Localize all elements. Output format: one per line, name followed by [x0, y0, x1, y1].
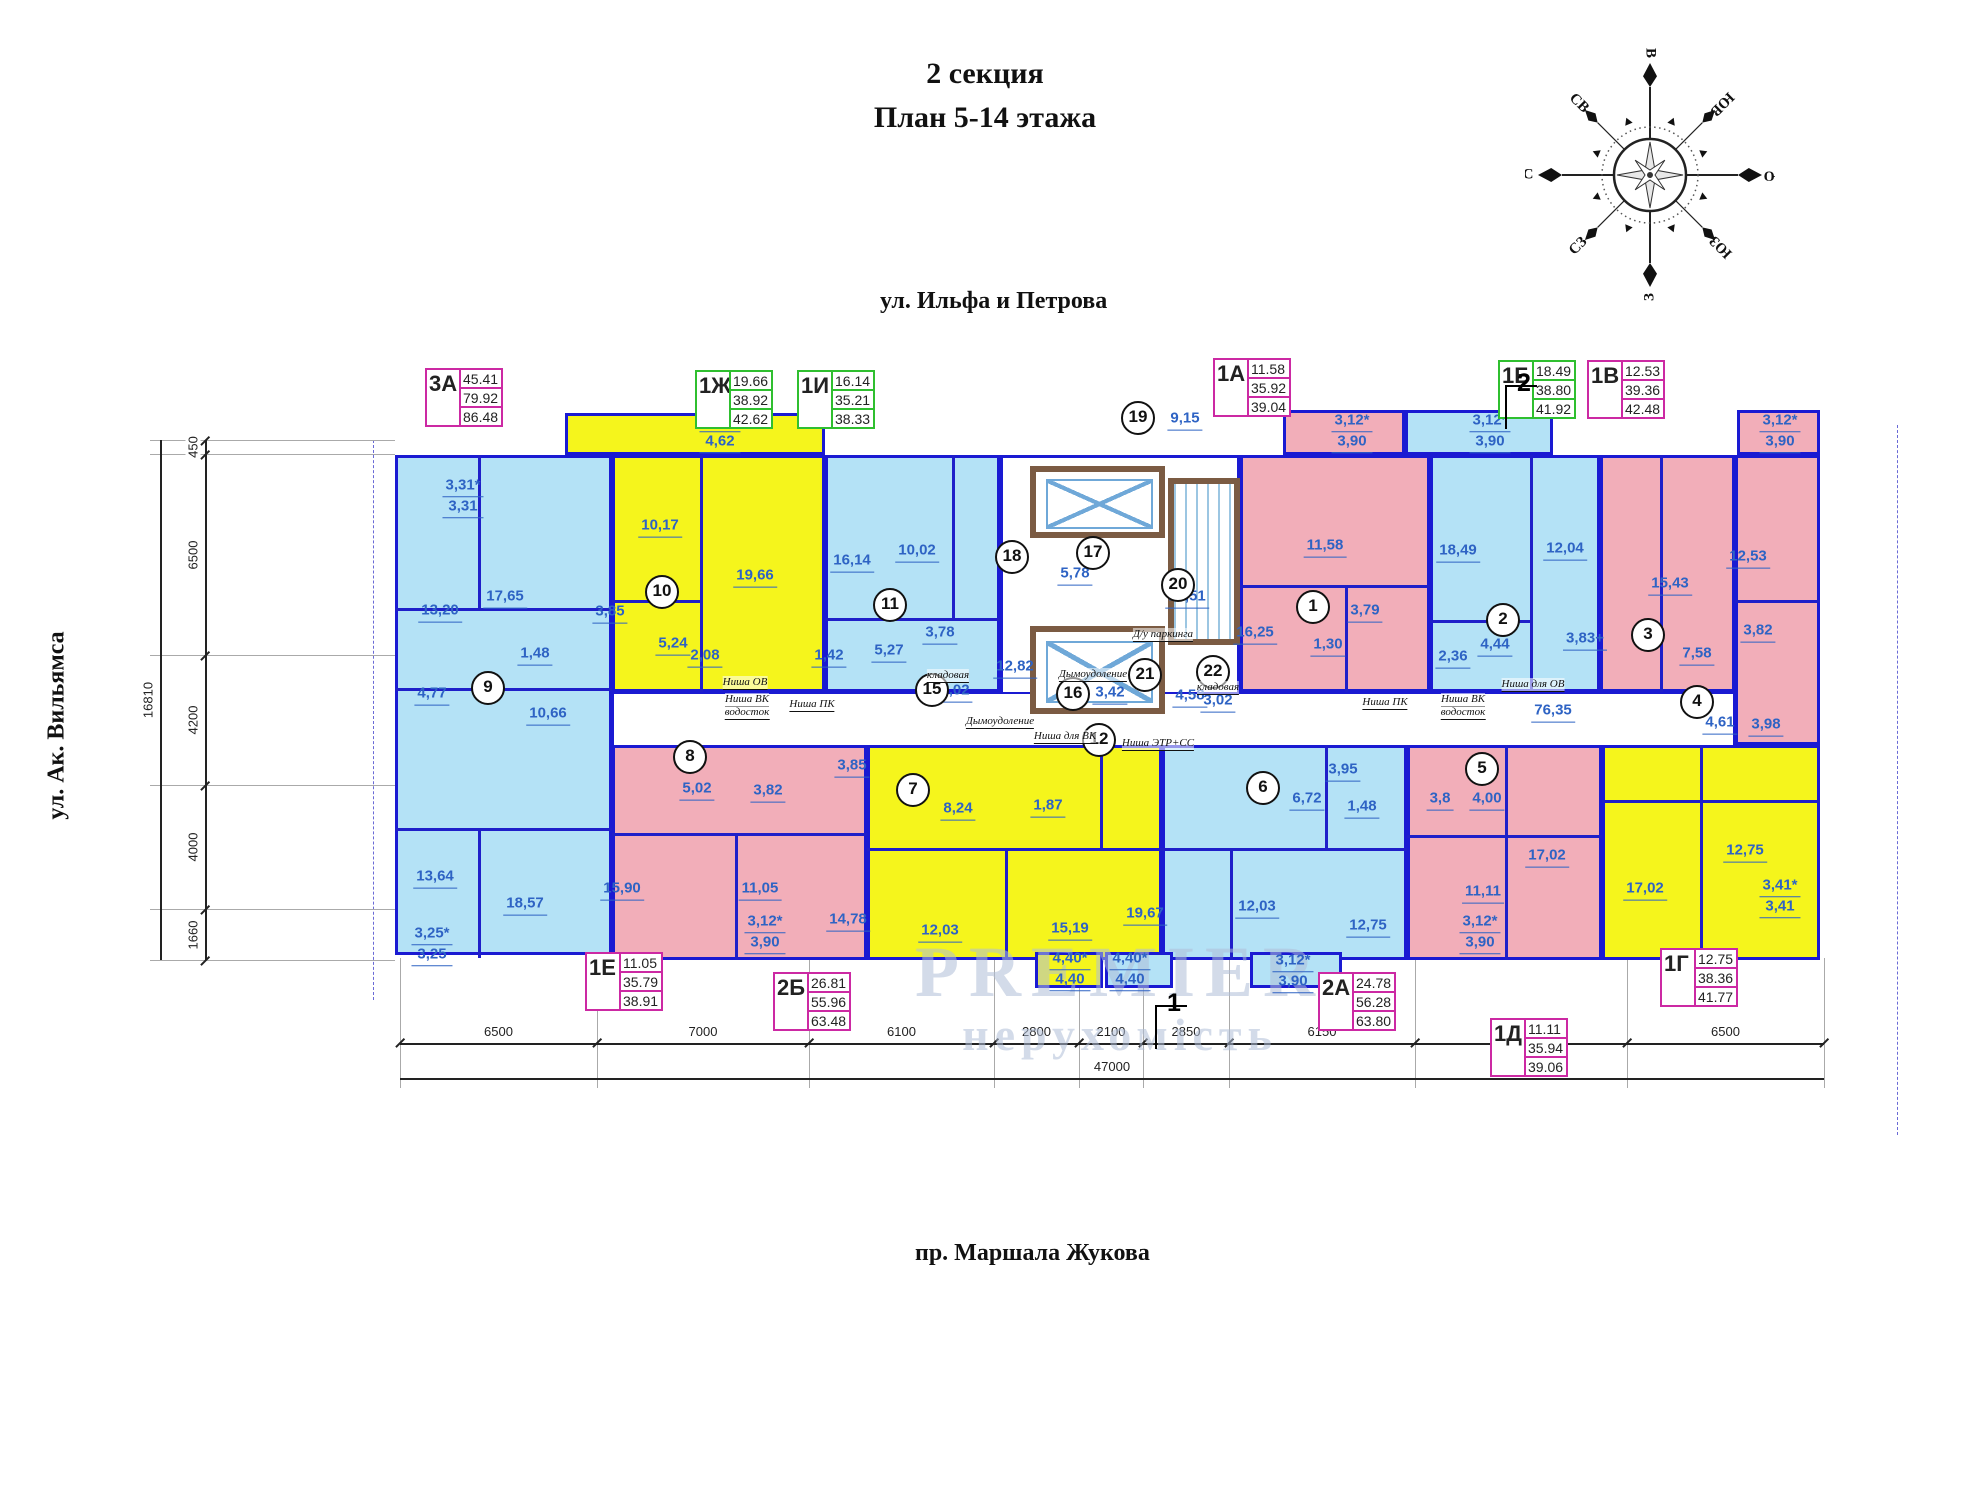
room-number-circle: 21 — [1128, 658, 1162, 692]
apartment-id: 2Б — [773, 972, 809, 1031]
room-number-circle: 3 — [1631, 618, 1665, 652]
room-area-label: 15,19 — [1048, 920, 1092, 941]
area-value: 19,66 — [733, 567, 777, 588]
room-area-label: 14,78 — [826, 911, 870, 932]
axis-line — [373, 440, 374, 1000]
dimension-label: 6500 — [1709, 1024, 1742, 1039]
service-note: Ниша ПК — [789, 698, 834, 712]
area-value: 12,53 — [1726, 548, 1770, 569]
apartment-area-value: 38.36 — [1694, 967, 1738, 988]
room-area-label: 10,02 — [895, 542, 939, 563]
room-area-label: 16,14 — [830, 552, 874, 573]
room-area-label: 8,24 — [940, 800, 975, 821]
dimension-label-total: 16810 — [141, 680, 156, 720]
svg-text:Ю: Ю — [1763, 168, 1775, 184]
room-block-blue — [825, 455, 1000, 692]
dimension-label: 6500 — [186, 538, 201, 571]
room-number-circle: 9 — [471, 671, 505, 705]
service-note: Ниша для ОВ — [1502, 678, 1565, 692]
partition-wall — [1700, 745, 1703, 960]
area-value: 4,00 — [1469, 790, 1504, 811]
area-value: 3,8 — [1427, 790, 1454, 811]
apartment-area-value: 16.14 — [831, 370, 875, 391]
room-area-label: 12,75 — [1346, 917, 1390, 938]
apartment-table-1Г: 1Г12.7538.3641.77 — [1660, 948, 1738, 1007]
apartment-area-value: 42.62 — [729, 408, 773, 429]
area-value: 15,90 — [600, 880, 644, 901]
room-area-label: 15,43 — [1648, 575, 1692, 596]
room-number-circle: 20 — [1161, 568, 1195, 602]
apartment-area-value: 55.96 — [807, 991, 851, 1012]
room-area-label: 12,03 — [1235, 898, 1279, 919]
apartment-table-2А: 2А24.7856.2863.80 — [1318, 972, 1396, 1031]
room-number-circle: 10 — [645, 575, 679, 609]
room-area-label: 19,66 — [733, 567, 777, 588]
partition-wall — [1162, 848, 1407, 851]
apartment-area-value: 24.78 — [1352, 972, 1396, 993]
extension-line — [1824, 958, 1825, 1088]
compass-rose: ВЮВЮЮЗЗСЗССВ — [1525, 40, 1775, 310]
room-area-label: 3,82 — [750, 782, 785, 803]
area-value: 4,61 — [1702, 714, 1737, 735]
area-value: 4,40* — [1109, 949, 1150, 970]
service-note: Ниша ОВ — [723, 676, 768, 690]
room-area-label: 3,12*3,90 — [1272, 951, 1313, 993]
service-note: Ниша ВК — [725, 693, 769, 707]
partition-wall — [867, 848, 1162, 851]
area-value: 3,25* — [411, 924, 452, 945]
svg-text:В: В — [1643, 48, 1659, 58]
service-note: Ниша ВК — [1441, 693, 1485, 707]
room-block-yellow — [1602, 745, 1820, 960]
apartment-table-1Е: 1Е11.0535.7938.91 — [585, 952, 663, 1011]
area-value: 13,20 — [418, 602, 462, 623]
area-value: 12,75 — [1723, 842, 1767, 863]
area-value: 12,03 — [918, 922, 962, 943]
partition-wall — [1660, 455, 1663, 692]
room-area-label: 5,27 — [871, 642, 906, 663]
area-value: 11,05 — [739, 880, 782, 901]
dimension-label: 7000 — [687, 1024, 720, 1039]
area-value: 7,58 — [1679, 645, 1714, 666]
room-area-label: 2,36 — [1435, 648, 1470, 669]
area-value: 4,44 — [1477, 636, 1512, 657]
area-value: 3,12* — [1272, 951, 1313, 972]
room-area-label: 17,65 — [483, 588, 527, 609]
room-area-label: 1,48 — [517, 645, 552, 666]
area-value: 5,27 — [871, 642, 906, 663]
room-area-label: 3,79 — [1347, 602, 1382, 623]
area-value: 11,11 — [1462, 883, 1504, 904]
section-marker: 1 — [1155, 1005, 1187, 1049]
apartment-area-value: 11.11 — [1524, 1018, 1568, 1039]
partition-wall — [478, 828, 481, 958]
area-value: 3,41 — [1759, 897, 1800, 918]
partition-wall — [1735, 600, 1820, 603]
area-value: 13,64 — [413, 868, 457, 889]
area-value: 3,12* — [1331, 411, 1372, 432]
area-value: 3,90 — [1459, 933, 1500, 954]
apartment-area-value: 35.79 — [619, 971, 663, 992]
area-value: 3,83+ — [1563, 630, 1607, 651]
area-value: 2,08 — [687, 647, 722, 668]
area-value: 19,67 — [1123, 905, 1167, 926]
area-value: 2,36 — [1435, 648, 1470, 669]
partition-wall — [1602, 800, 1820, 803]
room-block-pink — [1240, 455, 1430, 692]
room-area-label: 17,02 — [1623, 880, 1667, 901]
area-value: 3,90 — [1469, 432, 1510, 453]
room-area-label: 3,12*3,90 — [744, 912, 785, 954]
room-number-circle: 17 — [1076, 536, 1110, 570]
room-area-label: 1,42 — [811, 647, 846, 668]
area-value: 1,48 — [1344, 798, 1379, 819]
apartment-table-3А: 3А45.4179.9286.48 — [425, 368, 503, 427]
apartment-id: 1Д — [1490, 1018, 1526, 1077]
svg-text:С: С — [1525, 166, 1533, 182]
apartment-area-value: 19.66 — [729, 370, 773, 391]
apartment-table-1А: 1А11.5835.9239.04 — [1213, 358, 1291, 417]
room-area-label: 6,72 — [1289, 790, 1324, 811]
room-area-label: 10,17 — [638, 517, 682, 538]
area-value: 17,65 — [483, 588, 527, 609]
room-area-label: 3,25*3,25 — [411, 924, 452, 966]
room-number-circle: 1 — [1296, 590, 1330, 624]
service-note: Дымоудоление — [1059, 668, 1127, 682]
area-value: 3,79 — [1347, 602, 1382, 623]
room-area-label: 3,85 — [834, 757, 869, 778]
apartment-id: 1Г — [1660, 948, 1696, 1007]
section-marker: 2 — [1505, 385, 1537, 429]
room-area-label: 3,95 — [1325, 761, 1360, 782]
extension-line — [150, 655, 395, 656]
room-number-circle: 8 — [673, 740, 707, 774]
area-value: 3,12* — [744, 912, 785, 933]
apartment-area-value: 38.91 — [619, 990, 663, 1011]
elevator-cab-icon — [1046, 479, 1153, 529]
area-value: 10,17 — [638, 517, 682, 538]
area-value: 1,30 — [1310, 636, 1345, 657]
area-value: 1,42 — [811, 647, 846, 668]
room-block-pink — [1600, 455, 1735, 692]
area-value: 3,31 — [442, 497, 483, 518]
apartment-id: 1А — [1213, 358, 1249, 417]
partition-wall — [952, 455, 955, 620]
partition-wall — [612, 833, 867, 836]
apartment-table-1И: 1И16.1435.2138.33 — [797, 370, 875, 429]
area-value: 15,43 — [1648, 575, 1692, 596]
area-value: 14,78 — [826, 911, 870, 932]
room-number-circle: 18 — [995, 540, 1029, 574]
dimension-label: 6500 — [482, 1024, 515, 1039]
room-number-circle: 7 — [896, 773, 930, 807]
apartment-area-value: 18.49 — [1532, 360, 1576, 381]
room-number-circle: 5 — [1465, 752, 1499, 786]
apartment-area-value: 41.92 — [1532, 398, 1576, 419]
area-value: 3,31* — [442, 476, 483, 497]
room-area-label: 9,15 — [1167, 410, 1202, 431]
area-value: 3,25 — [411, 945, 452, 966]
room-area-label: 3,83+ — [1563, 630, 1607, 651]
apartment-area-value: 42.48 — [1621, 398, 1665, 419]
service-note: кладовая — [1197, 681, 1239, 695]
area-value: 76,35 — [1531, 702, 1575, 723]
apartment-area-value: 35.21 — [831, 389, 875, 410]
room-area-label: 3,12*3,90 — [1331, 411, 1372, 453]
area-value: 18,49 — [1436, 542, 1480, 563]
room-number-circle: 11 — [873, 588, 907, 622]
area-value: 4,77 — [414, 685, 449, 706]
room-area-label: 1,48 — [1344, 798, 1379, 819]
partition-wall — [735, 833, 738, 960]
room-area-label: 19,67 — [1123, 905, 1167, 926]
street-bottom: пр. Маршала Жукова — [915, 1240, 1150, 1267]
apartment-area-value: 35.94 — [1524, 1037, 1568, 1058]
extension-line — [1415, 958, 1416, 1088]
service-note: Дымоудоление — [966, 715, 1034, 729]
room-number-circle: 19 — [1121, 401, 1155, 435]
partition-wall — [1240, 585, 1430, 588]
area-value: 18,57 — [503, 895, 547, 916]
apartment-id: 1В — [1587, 360, 1623, 419]
extension-line — [400, 958, 401, 1088]
room-area-label: 18,49 — [1436, 542, 1480, 563]
room-area-label: 13,64 — [413, 868, 457, 889]
partition-wall — [1100, 745, 1103, 848]
area-value: 4,62 — [699, 432, 740, 453]
area-value: 3,90 — [1759, 432, 1800, 453]
apartment-table-2Б: 2Б26.8155.9663.48 — [773, 972, 851, 1031]
page-title: 2 секция План 5-14 этажа — [785, 52, 1185, 139]
area-value: 17,02 — [1525, 847, 1569, 868]
site-boundary-line — [1897, 425, 1898, 1135]
apartment-id: 3А — [425, 368, 461, 427]
room-area-label: 4,77 — [414, 685, 449, 706]
partition-wall — [1530, 455, 1533, 692]
svg-text:З: З — [1641, 293, 1657, 301]
extension-line — [1627, 958, 1628, 1088]
area-value: 3,95 — [1325, 761, 1360, 782]
apartment-area-value: 39.36 — [1621, 379, 1665, 400]
area-value: 3,82 — [750, 782, 785, 803]
apartment-area-value: 39.06 — [1524, 1056, 1568, 1077]
apartment-area-value: 11.05 — [619, 952, 663, 973]
apartment-id: 1И — [797, 370, 833, 429]
room-area-label: 2,08 — [687, 647, 722, 668]
apartment-area-value: 86.48 — [459, 406, 503, 427]
area-value: 3,98 — [1748, 716, 1783, 737]
dimension-line-total — [400, 1078, 1824, 1080]
apartment-area-value: 12.75 — [1694, 948, 1738, 969]
service-note: кладовая — [927, 669, 969, 683]
area-value: 1,48 — [517, 645, 552, 666]
room-area-label: 13,20 — [418, 602, 462, 623]
room-area-label: 11,11 — [1462, 883, 1504, 904]
dimension-label: 4200 — [186, 704, 201, 737]
area-value: 3,78 — [922, 624, 957, 645]
stairwell — [1168, 478, 1240, 645]
area-value: 3,85 — [592, 603, 627, 624]
area-value: 3,41* — [1759, 876, 1800, 897]
room-area-label: 11,05 — [739, 880, 782, 901]
floorplan-page: 2 секция План 5-14 этажа ул. Ильфа и Пет… — [0, 0, 1980, 1485]
room-number-circle: 4 — [1680, 685, 1714, 719]
room-area-label: 15,90 — [600, 880, 644, 901]
apartment-table-1Ж: 1Ж19.6638.9242.62 — [695, 370, 773, 429]
apartment-area-value: 45.41 — [459, 368, 503, 389]
area-value: 3,90 — [1272, 972, 1313, 993]
area-value: 16,25 — [1233, 624, 1277, 645]
section-number: 2 — [1517, 369, 1531, 398]
area-value: 3,82 — [1740, 622, 1775, 643]
area-value: 4,40 — [1109, 970, 1150, 991]
area-value: 6,72 — [1289, 790, 1324, 811]
area-value: 11,58 — [1304, 537, 1347, 558]
apartment-table-1В: 1В12.5339.3642.48 — [1587, 360, 1665, 419]
apartment-area-value: 12.53 — [1621, 360, 1665, 381]
area-value: 12,04 — [1543, 540, 1587, 561]
room-number-circle: 16 — [1056, 677, 1090, 711]
room-area-label: 5,02 — [679, 780, 714, 801]
room-area-label: 17,02 — [1525, 847, 1569, 868]
room-area-label: 12,53 — [1726, 548, 1770, 569]
room-area-label: 1,30 — [1310, 636, 1345, 657]
room-number-circle: 2 — [1486, 603, 1520, 637]
room-area-label: 5,24 — [655, 635, 690, 656]
room-area-label: 3,78 — [922, 624, 957, 645]
room-area-label: 1,87 — [1030, 797, 1065, 818]
apartment-area-value: 39.04 — [1247, 396, 1291, 417]
room-area-label: 12,03 — [918, 922, 962, 943]
area-value: 12,75 — [1346, 917, 1390, 938]
dimension-line — [205, 440, 207, 960]
apartment-area-value: 35.92 — [1247, 377, 1291, 398]
area-value: 10,66 — [526, 705, 570, 726]
area-value: 3,90 — [1331, 432, 1372, 453]
area-value: 3,85 — [834, 757, 869, 778]
area-value: 4,40* — [1049, 949, 1090, 970]
area-value: 15,19 — [1048, 920, 1092, 941]
room-area-label: 7,58 — [1679, 645, 1714, 666]
apartment-area-value: 63.80 — [1352, 1010, 1396, 1031]
room-area-label: 16,25 — [1233, 624, 1277, 645]
partition-wall — [395, 828, 612, 831]
dimension-label: 450 — [186, 434, 201, 460]
service-note: Ниша для ВК — [1034, 730, 1096, 744]
room-area-label: 3,85 — [592, 603, 627, 624]
area-value: 8,24 — [940, 800, 975, 821]
room-number-circle: 6 — [1246, 771, 1280, 805]
room-area-label: 4,40*4,40 — [1049, 949, 1090, 991]
room-area-label: 3,41*3,41 — [1759, 876, 1800, 918]
area-value: 5,02 — [679, 780, 714, 801]
apartment-area-value: 79.92 — [459, 387, 503, 408]
apartment-area-value: 63.48 — [807, 1010, 851, 1031]
room-area-label: 11,58 — [1304, 537, 1347, 558]
service-note: Ниша ЭТР+СС — [1122, 737, 1194, 751]
room-area-label: 3,12*3,90 — [1459, 912, 1500, 954]
section-number: 1 — [1167, 989, 1181, 1018]
apartment-area-value: 41.77 — [1694, 986, 1738, 1007]
extension-line — [150, 909, 395, 910]
apartment-area-value: 38.80 — [1532, 379, 1576, 400]
area-value: 10,02 — [895, 542, 939, 563]
street-left: ул. Ак. Вильямса — [44, 626, 71, 826]
extension-line — [150, 785, 395, 786]
room-area-label: 3,82 — [1740, 622, 1775, 643]
room-area-label: 3,42 — [1092, 684, 1127, 705]
area-value: 12,03 — [1235, 898, 1279, 919]
service-note: Ниша ПК — [1362, 696, 1407, 710]
apartment-area-value: 38.92 — [729, 389, 773, 410]
service-note: Д/у паркинга — [1133, 628, 1193, 642]
area-value: 3,42 — [1092, 684, 1127, 705]
elevator-shaft — [1030, 466, 1165, 538]
room-area-label: 76,35 — [1531, 702, 1575, 723]
room-area-label: 12,75 — [1723, 842, 1767, 863]
apartment-area-value: 11.58 — [1247, 358, 1291, 379]
room-area-label: 3,8 — [1427, 790, 1454, 811]
apartment-id: 1Е — [585, 952, 621, 1011]
dimension-label-total: 47000 — [1092, 1059, 1132, 1074]
area-value: 12,82 — [993, 658, 1037, 679]
area-value: 5,24 — [655, 635, 690, 656]
area-value: 3,90 — [744, 933, 785, 954]
room-area-label: 4,00 — [1469, 790, 1504, 811]
service-note: водосток — [725, 706, 770, 720]
partition-wall — [1505, 745, 1508, 960]
room-area-label: 12,04 — [1543, 540, 1587, 561]
room-area-label: 18,57 — [503, 895, 547, 916]
room-area-label: 3,12*3,90 — [1759, 411, 1800, 453]
area-value: 16,14 — [830, 552, 874, 573]
room-area-label: 3,98 — [1748, 716, 1783, 737]
room-area-label: 3,31*3,31 — [442, 476, 483, 518]
apartment-id: 2А — [1318, 972, 1354, 1031]
apartment-table-1Д: 1Д11.1135.9439.06 — [1490, 1018, 1568, 1077]
room-area-label: 10,66 — [526, 705, 570, 726]
room-area-label: 4,40*4,40 — [1109, 949, 1150, 991]
area-value: 17,02 — [1623, 880, 1667, 901]
apartment-area-value: 38.33 — [831, 408, 875, 429]
room-area-label: 4,44 — [1477, 636, 1512, 657]
watermark-line2: нерухомість — [840, 1011, 1400, 1059]
room-area-label: 12,82 — [993, 658, 1037, 679]
room-area-label: 4,61 — [1702, 714, 1737, 735]
title-floors: План 5-14 этажа — [785, 96, 1185, 140]
area-value: 3,12* — [1459, 912, 1500, 933]
dimension-label: 1660 — [186, 918, 201, 951]
dimension-label: 4000 — [186, 831, 201, 864]
area-value: 3,12* — [1759, 411, 1800, 432]
dimension-line-total — [160, 440, 162, 960]
street-top: ул. Ильфа и Петрова — [880, 288, 1107, 315]
apartment-id: 1Ж — [695, 370, 731, 429]
apartment-area-value: 26.81 — [807, 972, 851, 993]
area-value: 9,15 — [1167, 410, 1202, 431]
area-value: 4,40 — [1049, 970, 1090, 991]
title-section: 2 секция — [785, 52, 1185, 96]
service-note: водосток — [1441, 706, 1486, 720]
area-value: 1,87 — [1030, 797, 1065, 818]
partition-wall — [825, 618, 1000, 621]
apartment-area-value: 56.28 — [1352, 991, 1396, 1012]
extension-line — [150, 960, 395, 961]
